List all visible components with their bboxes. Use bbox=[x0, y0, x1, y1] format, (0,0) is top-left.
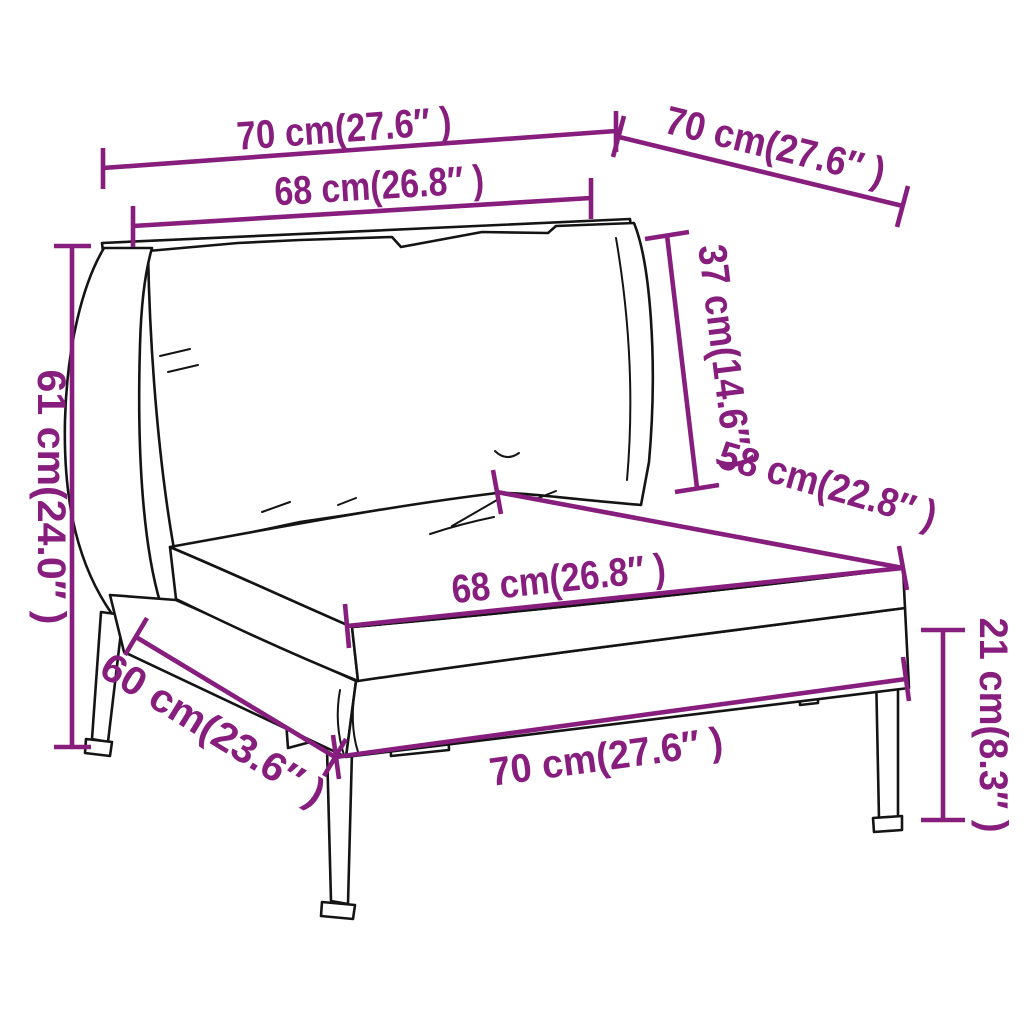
leg-front-left-foot bbox=[321, 902, 355, 919]
leg-front-right-foot bbox=[873, 816, 902, 832]
dim-leg-height: 21 cm(8.3″ ) bbox=[921, 618, 1015, 833]
back-cushion bbox=[148, 223, 653, 549]
backrest-wicker-panel bbox=[65, 248, 160, 614]
dim-side-top-width-label: 70 cm(27.6″ ) bbox=[661, 98, 890, 194]
dim-seat-depth-label: 58 cm(22.8″ ) bbox=[713, 433, 941, 537]
dim-leg-height-label: 21 cm(8.3″ ) bbox=[971, 618, 1015, 833]
dim-total-height-label: 61 cm(24.0″ ) bbox=[29, 370, 73, 625]
diagram-canvas: 70 cm(27.6″ ) 70 cm(27.6″ ) 68 cm(26.8″ … bbox=[0, 0, 1024, 1024]
dim-back-top-width-label: 70 cm(27.6″ ) bbox=[235, 99, 453, 159]
leg-front-right bbox=[873, 669, 902, 832]
dimension-diagram: 70 cm(27.6″ ) 70 cm(27.6″ ) 68 cm(26.8″ … bbox=[0, 0, 1024, 1024]
dim-side-top-width: 70 cm(27.6″ ) bbox=[613, 98, 908, 227]
